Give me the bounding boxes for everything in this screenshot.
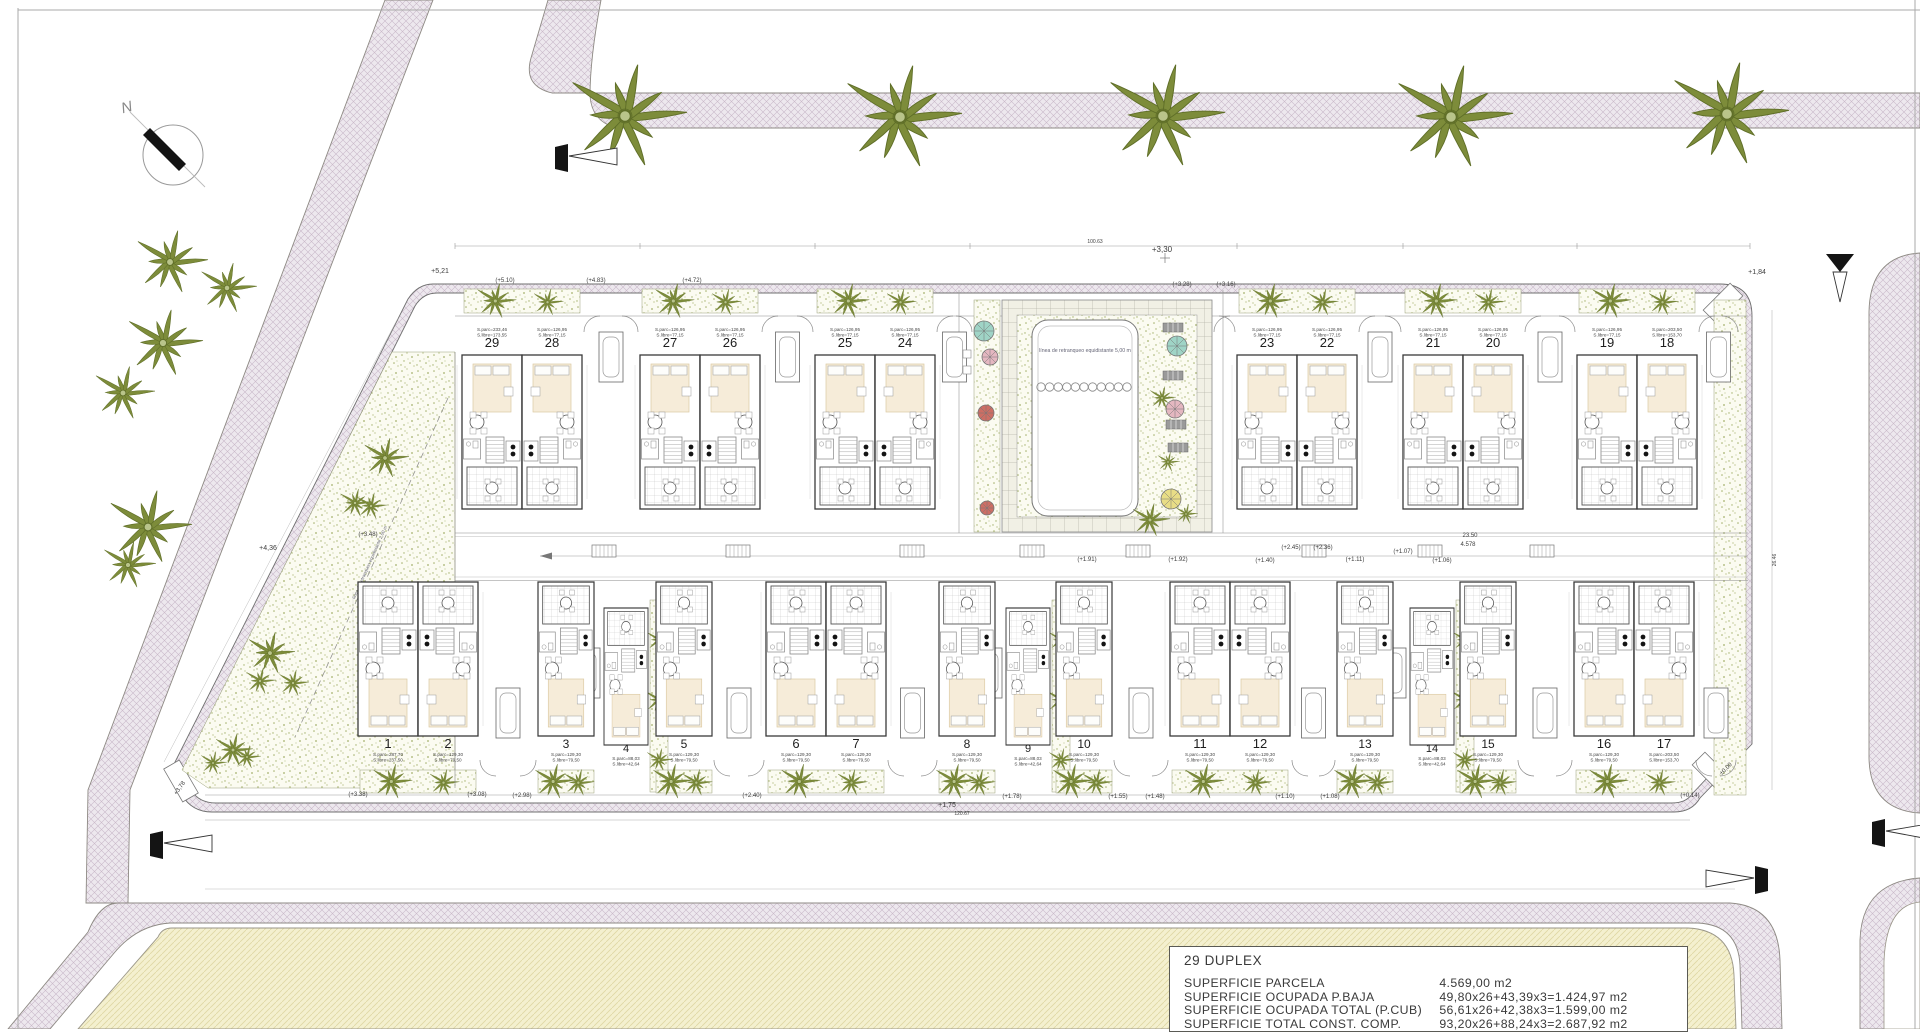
svg-text:(+4.83): (+4.83)	[586, 278, 605, 284]
svg-text:S.parc=88,03: S.parc=88,03	[1418, 756, 1446, 761]
svg-text:(+3.48): (+3.48)	[358, 532, 377, 538]
unit-labels: 16S.parc=129,30S.libre=79,5017S.parc=203…	[1589, 736, 1679, 763]
svg-text:S.libre=153,70: S.libre=153,70	[1649, 758, 1679, 763]
svg-text:S.libre=77,15: S.libre=77,15	[656, 333, 684, 338]
svg-text:4: 4	[623, 743, 629, 755]
svg-text:4.578: 4.578	[1460, 542, 1476, 548]
unit-labels: 14S.parc=88,03S.libre=42,64	[1418, 743, 1446, 767]
svg-text:(+1.55): (+1.55)	[1108, 794, 1127, 800]
layer-pool: línea de retranqueo equidistante 5,00 m	[963, 300, 1212, 532]
svg-text:15: 15	[1481, 737, 1495, 751]
svg-text:S.libre=77,15: S.libre=77,15	[831, 333, 859, 338]
svg-text:S.parc=126,95: S.parc=126,95	[1592, 327, 1622, 332]
unit-4	[604, 608, 648, 745]
site-plan-page: { "compass": { "north_label": "N" }, "po…	[0, 0, 1920, 1029]
svg-text:S.parc=129,30: S.parc=129,30	[669, 752, 699, 757]
svg-text:11: 11	[1193, 736, 1207, 751]
svg-text:S.libre=79,50: S.libre=79,50	[552, 758, 580, 763]
table-row-label: SUPERFICIE PARCELA	[1184, 977, 1439, 991]
unit-labels: 11S.parc=129,30S.libre=79,5012S.parc=129…	[1185, 736, 1275, 763]
svg-text:(+3.16): (+3.16)	[1216, 282, 1235, 288]
svg-text:S.parc=126,95: S.parc=126,95	[655, 327, 685, 332]
unit-pair-25-24	[810, 355, 940, 509]
svg-text:S.libre=77,15: S.libre=77,15	[538, 333, 566, 338]
unit-13	[1337, 582, 1393, 736]
svg-text:23.50: 23.50	[1462, 533, 1478, 539]
svg-text:(+1.11): (+1.11)	[1346, 557, 1365, 563]
svg-text:S.parc=126,95: S.parc=126,95	[1312, 327, 1342, 332]
road-east	[1869, 253, 1920, 813]
unit-9	[1006, 608, 1050, 745]
svg-text:+3,30: +3,30	[1152, 245, 1173, 254]
table-row-label: SUPERFICIE OCUPADA TOTAL (P.CUB)	[1184, 1004, 1439, 1018]
svg-text:S.libre=77,15: S.libre=77,15	[1313, 333, 1341, 338]
lounger-icon	[1168, 443, 1188, 452]
svg-text:S.parc=203,50: S.parc=203,50	[1649, 752, 1679, 757]
pool-area: línea de retranqueo equidistante 5,00 m	[963, 300, 1212, 532]
table-row-value: 49,80x26+43,39x3=1.424,97 m2	[1439, 991, 1675, 1005]
svg-text:S.parc=126,95: S.parc=126,95	[830, 327, 860, 332]
section-marker-icon	[1872, 819, 1920, 847]
unit-labels: 27S.parc=126,95S.libre=77,1526S.parc=126…	[655, 327, 745, 350]
svg-text:120.67: 120.67	[954, 811, 970, 817]
svg-text:(+4.72): (+4.72)	[682, 278, 701, 284]
svg-text:S.libre=42,64: S.libre=42,64	[1014, 762, 1042, 767]
svg-text:(+1.08): (+1.08)	[1320, 794, 1339, 800]
svg-text:S.parc=287,70: S.parc=287,70	[373, 752, 403, 757]
svg-text:(+3.28): (+3.28)	[1172, 282, 1191, 288]
svg-text:+5,21: +5,21	[431, 268, 449, 275]
svg-text:(+1.06): (+1.06)	[1432, 558, 1451, 564]
table-row-value: 4.569,00 m2	[1439, 977, 1675, 991]
svg-text:14: 14	[1426, 743, 1438, 755]
svg-text:2: 2	[444, 736, 451, 751]
unit-labels: 29S.parc=233,46S.libre=173,5528S.parc=12…	[477, 327, 567, 350]
table-row-value: 56,61x26+42,38x3=1.599,00 m2	[1439, 1004, 1675, 1018]
svg-text:S.parc=129,30: S.parc=129,30	[781, 752, 811, 757]
svg-text:(+1.48): (+1.48)	[1145, 794, 1164, 800]
unit-labels: 23S.parc=126,95S.libre=77,1522S.parc=126…	[1252, 327, 1342, 350]
title-block-title: 29 DUPLEX	[1184, 953, 1675, 968]
svg-text:S.parc=129,30: S.parc=129,30	[1589, 752, 1619, 757]
unit-pair-11-12	[1165, 582, 1295, 736]
svg-text:(+5.10): (+5.10)	[495, 278, 514, 284]
layer-roads	[8, 0, 1920, 1029]
svg-text:S.parc=88,03: S.parc=88,03	[1014, 756, 1042, 761]
unit-labels: 13S.parc=129,30S.libre=79,50	[1350, 737, 1380, 763]
svg-text:(+1.92): (+1.92)	[1168, 557, 1187, 563]
svg-text:S.libre=79,50: S.libre=79,50	[1590, 758, 1618, 763]
section-marker-icon	[150, 831, 212, 859]
unit-labels: 15S.parc=129,30S.libre=79,50	[1473, 737, 1503, 763]
umbrella-icon	[982, 349, 998, 365]
unit-pair-6-7	[761, 582, 891, 736]
unit-labels: 8S.parc=129,30S.libre=79,50	[952, 737, 982, 763]
unit-pair-27-26	[635, 355, 765, 509]
svg-text:S.parc=129,30: S.parc=129,30	[952, 752, 982, 757]
unit-pair-21-20	[1398, 355, 1528, 509]
unit-labels: 3S.parc=129,30S.libre=79,50	[551, 737, 581, 763]
svg-text:S.libre=77,15: S.libre=77,15	[1593, 333, 1621, 338]
unit-labels: 6S.parc=129,30S.libre=79,507S.parc=129,3…	[781, 736, 871, 763]
svg-text:S.libre=79,50: S.libre=79,50	[842, 758, 870, 763]
umbrella-icon	[980, 501, 994, 515]
umbrella-icon	[1161, 489, 1181, 509]
unit-labels: 19S.parc=126,95S.libre=77,1518S.parc=203…	[1592, 327, 1682, 350]
table-row-label: SUPERFICIE OCUPADA P.BAJA	[1184, 991, 1439, 1005]
unit-labels: 25S.parc=126,95S.libre=77,1524S.parc=126…	[830, 327, 920, 350]
table-row: SUPERFICIE TOTAL CONST. COMP. 93,20x26+8…	[1184, 1018, 1675, 1032]
svg-text:(+2.40): (+2.40)	[742, 793, 761, 799]
svg-text:S.libre=79,50: S.libre=79,50	[953, 758, 981, 763]
palm-tree-icon	[96, 366, 155, 419]
unit-labels: 4S.parc=88,03S.libre=42,64	[612, 743, 640, 767]
svg-text:5: 5	[681, 737, 688, 751]
unit-pair-23-22	[1232, 355, 1362, 509]
svg-text:S.parc=129,30: S.parc=129,30	[551, 752, 581, 757]
svg-text:(+1.10): (+1.10)	[1275, 794, 1294, 800]
unit-3	[538, 582, 594, 736]
lounger-icon	[1163, 371, 1183, 380]
unit-8	[939, 582, 995, 736]
svg-text:7: 7	[852, 736, 859, 751]
unit-labels: 21S.parc=126,95S.libre=77,1520S.parc=126…	[1418, 327, 1508, 350]
svg-text:S.libre=77,15: S.libre=77,15	[1419, 333, 1447, 338]
svg-text:S.parc=233,46: S.parc=233,46	[477, 327, 507, 332]
svg-text:S.parc=129,30: S.parc=129,30	[841, 752, 871, 757]
site-plan-drawing: línea de retranqueo equidistante 2,00 ml…	[0, 0, 1920, 1029]
svg-text:16: 16	[1597, 736, 1611, 751]
svg-text:(+2.45): (+2.45)	[1281, 545, 1300, 551]
svg-text:S.parc=126,95: S.parc=126,95	[1478, 327, 1508, 332]
svg-text:S.libre=42,64: S.libre=42,64	[612, 762, 640, 767]
compass-north-icon: N	[119, 98, 205, 187]
svg-text:S.parc=126,95: S.parc=126,95	[890, 327, 920, 332]
palm-tree-icon	[201, 263, 257, 313]
svg-text:9: 9	[1025, 743, 1031, 755]
svg-text:S.parc=126,95: S.parc=126,95	[1252, 327, 1282, 332]
svg-text:(+3.38): (+3.38)	[348, 792, 367, 798]
unit-5	[656, 582, 712, 736]
title-block: 29 DUPLEX SUPERFICIE PARCELA 4.569,00 m2…	[1169, 946, 1688, 1032]
unit-pair-1-2	[353, 582, 483, 736]
svg-text:(+3.08): (+3.08)	[467, 792, 486, 798]
svg-text:S.libre=79,50: S.libre=79,50	[434, 758, 462, 763]
svg-text:S.libre=153,70: S.libre=153,70	[1652, 333, 1682, 338]
svg-text:S.libre=173,55: S.libre=173,55	[477, 333, 507, 338]
svg-text:S.libre=77,15: S.libre=77,15	[1479, 333, 1507, 338]
lounger-icon	[1166, 420, 1186, 429]
svg-text:(+0.14): (+0.14)	[1680, 793, 1699, 799]
svg-text:1: 1	[384, 736, 391, 751]
unit-labels: 5S.parc=129,30S.libre=79,50	[669, 737, 699, 763]
svg-text:S.libre=79,50: S.libre=79,50	[670, 758, 698, 763]
lounger-icon	[1163, 323, 1183, 332]
svg-text:+4,36: +4,36	[259, 545, 277, 552]
svg-text:S.parc=129,30: S.parc=129,30	[433, 752, 463, 757]
table-row: SUPERFICIE PARCELA 4.569,00 m2	[1184, 977, 1675, 991]
svg-text:S.parc=129,30: S.parc=129,30	[1350, 752, 1380, 757]
svg-text:S.parc=129,30: S.parc=129,30	[1185, 752, 1215, 757]
unit-pair-16-17	[1569, 582, 1699, 736]
svg-text:S.libre=79,50: S.libre=79,50	[1246, 758, 1274, 763]
unit-14	[1410, 608, 1454, 745]
svg-text:(+1.07): (+1.07)	[1393, 549, 1412, 555]
svg-text:10: 10	[1077, 737, 1091, 751]
table-row-value: 93,20x26+88,24x3=2.687,92 m2	[1439, 1018, 1675, 1032]
svg-text:S.libre=77,15: S.libre=77,15	[1253, 333, 1281, 338]
svg-text:S.libre=237,50: S.libre=237,50	[373, 758, 403, 763]
unit-pair-19-18	[1572, 355, 1702, 509]
svg-text:S.parc=126,95: S.parc=126,95	[1418, 327, 1448, 332]
umbrella-icon	[1167, 336, 1187, 356]
svg-text:S.parc=129,30: S.parc=129,30	[1473, 752, 1503, 757]
unit-15	[1460, 582, 1516, 736]
svg-text:S.libre=79,50: S.libre=79,50	[1351, 758, 1379, 763]
section-marker-icon	[1706, 866, 1768, 894]
svg-text:(+1.91): (+1.91)	[1077, 557, 1096, 563]
svg-text:S.parc=129,30: S.parc=129,30	[1069, 752, 1099, 757]
svg-text:8: 8	[964, 737, 971, 751]
svg-text:(+2.36): (+2.36)	[1313, 545, 1332, 551]
svg-text:N: N	[119, 98, 134, 117]
unit-10	[1056, 582, 1112, 736]
svg-text:3: 3	[563, 737, 570, 751]
palm-tree-icon	[129, 310, 203, 377]
table-row-label: SUPERFICIE TOTAL CONST. COMP.	[1184, 1018, 1439, 1032]
umbrella-icon	[974, 321, 994, 341]
unit-pair-29-28	[457, 355, 587, 509]
umbrella-icon	[1166, 400, 1184, 418]
svg-text:(+1.78): (+1.78)	[1002, 794, 1021, 800]
palm-tree-icon	[137, 230, 208, 293]
svg-text:26.46: 26.46	[1772, 554, 1778, 567]
svg-text:S.parc=88,03: S.parc=88,03	[612, 756, 640, 761]
section-marker-icon	[1826, 254, 1854, 302]
svg-text:S.libre=79,50: S.libre=79,50	[782, 758, 810, 763]
svg-text:S.libre=79,50: S.libre=79,50	[1474, 758, 1502, 763]
svg-text:S.libre=77,15: S.libre=77,15	[716, 333, 744, 338]
svg-text:13: 13	[1358, 737, 1372, 751]
svg-text:S.libre=79,50: S.libre=79,50	[1186, 758, 1214, 763]
svg-text:100.63: 100.63	[1087, 239, 1103, 245]
umbrella-icon	[978, 405, 994, 421]
svg-text:17: 17	[1657, 736, 1671, 751]
svg-text:+1,75: +1,75	[938, 802, 956, 809]
svg-text:S.parc=126,95: S.parc=126,95	[715, 327, 745, 332]
palm-tree-icon	[104, 542, 156, 589]
svg-text:12: 12	[1253, 736, 1267, 751]
svg-text:S.parc=129,30: S.parc=129,30	[1245, 752, 1275, 757]
svg-text:6: 6	[792, 736, 799, 751]
svg-text:S.libre=77,15: S.libre=77,15	[891, 333, 919, 338]
svg-text:S.parc=126,95: S.parc=126,95	[537, 327, 567, 332]
table-row: SUPERFICIE OCUPADA P.BAJA 49,80x26+43,39…	[1184, 991, 1675, 1005]
svg-text:línea de retranqueo equidistan: línea de retranqueo equidistante 5,00 m	[1039, 348, 1131, 354]
svg-text:S.libre=42,64: S.libre=42,64	[1418, 762, 1446, 767]
unit-labels: 9S.parc=88,03S.libre=42,64	[1014, 743, 1042, 767]
svg-text:S.libre=79,50: S.libre=79,50	[1070, 758, 1098, 763]
unit-labels: 10S.parc=129,30S.libre=79,50	[1069, 737, 1099, 763]
svg-text:S.parc=203,50: S.parc=203,50	[1652, 327, 1682, 332]
svg-text:+1,84: +1,84	[1748, 269, 1766, 276]
table-row: SUPERFICIE OCUPADA TOTAL (P.CUB) 56,61x2…	[1184, 1004, 1675, 1018]
svg-text:(+2.98): (+2.98)	[512, 793, 531, 799]
svg-text:(+1.40): (+1.40)	[1255, 558, 1274, 564]
